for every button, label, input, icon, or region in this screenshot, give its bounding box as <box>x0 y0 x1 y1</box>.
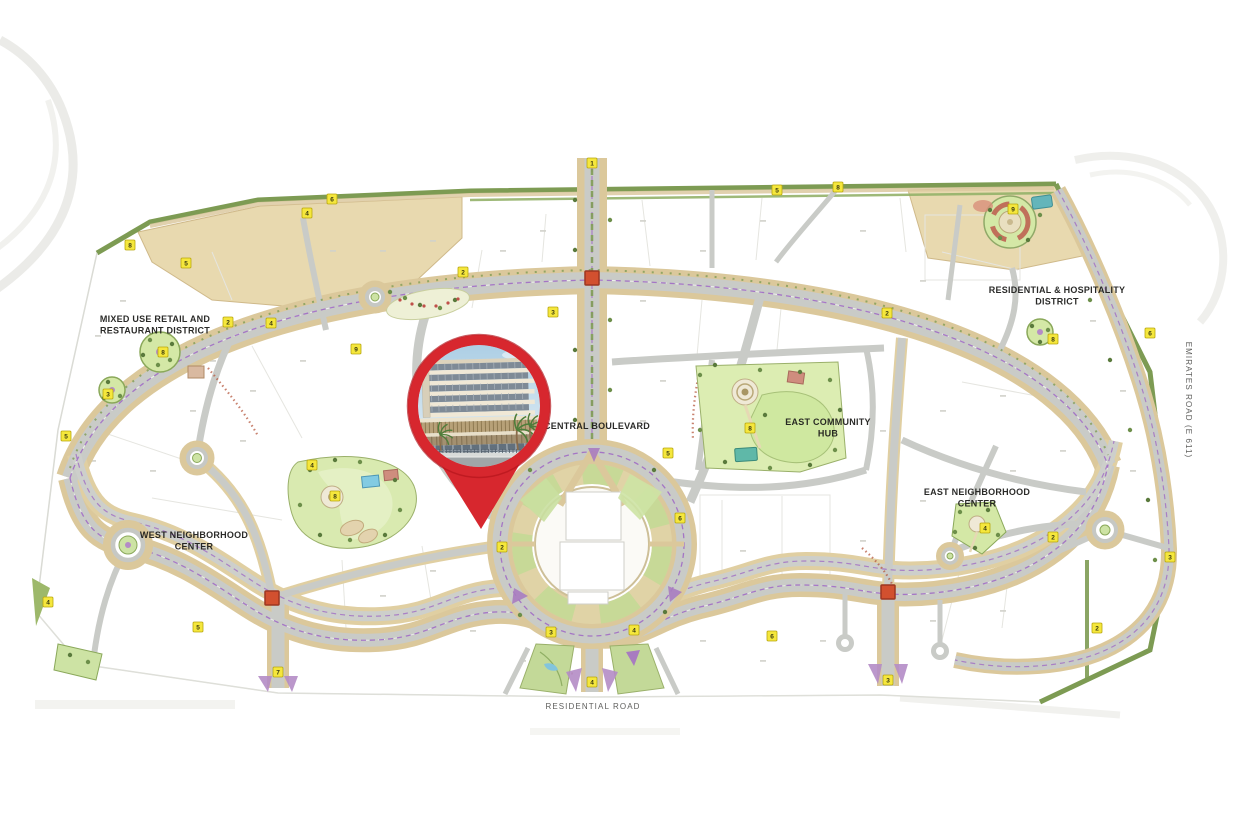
map-marker-number: 2 <box>461 270 465 277</box>
map-marker-number: 5 <box>184 261 188 268</box>
map-marker-number: 6 <box>678 516 682 523</box>
signal-junction <box>265 591 279 605</box>
map-marker-number: 3 <box>106 392 110 399</box>
map-marker: 2 <box>1048 532 1058 542</box>
residential-road-label: RESIDENTIAL ROAD <box>545 702 640 711</box>
map-marker-number: 4 <box>983 526 987 533</box>
map-marker: 4 <box>587 677 597 687</box>
map-marker-number: 8 <box>161 350 165 357</box>
map-marker: 8 <box>330 491 340 501</box>
map-marker: 6 <box>327 194 337 204</box>
emirates-road-label: EMIRATES ROAD (E 611) <box>1184 342 1193 459</box>
map-marker: 3 <box>548 307 558 317</box>
map-marker-number: 2 <box>226 320 230 327</box>
map-marker: 3 <box>883 675 893 685</box>
map-marker: 9 <box>1008 204 1018 214</box>
master-plan-map: 8546231283545494823456829864223658743 MI… <box>0 0 1236 824</box>
map-marker: 2 <box>497 542 507 552</box>
map-marker: 5 <box>61 431 71 441</box>
roundabout <box>1089 514 1121 546</box>
map-marker-number: 3 <box>551 310 555 317</box>
map-marker: 4 <box>980 523 990 533</box>
district-label-central-boulevard: CENTRAL BOULEVARD <box>544 421 650 431</box>
map-marker: 2 <box>882 308 892 318</box>
signal-junction <box>585 271 599 285</box>
map-marker-number: 4 <box>269 321 273 328</box>
map-marker: 8 <box>745 423 755 433</box>
map-marker-number: 2 <box>1095 626 1099 633</box>
map-marker-number: 4 <box>632 628 636 635</box>
map-marker-number: 8 <box>333 494 337 501</box>
map-marker-number: 2 <box>885 311 889 318</box>
map-marker: 8 <box>1048 334 1058 344</box>
map-marker-number: 9 <box>354 347 358 354</box>
map-marker: 8 <box>833 182 843 192</box>
map-marker-number: 8 <box>748 426 752 433</box>
map-marker-number: 6 <box>330 197 334 204</box>
map-marker: 3 <box>103 389 113 399</box>
map-marker: 3 <box>546 627 556 637</box>
map-marker: 5 <box>181 258 191 268</box>
map-marker: 4 <box>629 625 639 635</box>
map-marker-number: 4 <box>46 600 50 607</box>
map-marker: 4 <box>302 208 312 218</box>
map-marker-number: 2 <box>1051 535 1055 542</box>
map-marker-number: 3 <box>549 630 553 637</box>
map-marker-number: 6 <box>770 634 774 641</box>
map-marker: 2 <box>458 267 468 277</box>
building-illustration <box>415 357 543 454</box>
map-marker: 4 <box>266 318 276 328</box>
signal-junction <box>881 585 895 599</box>
map-marker-number: 4 <box>590 680 594 687</box>
map-marker: 8 <box>125 240 135 250</box>
map-marker: 9 <box>351 344 361 354</box>
map-marker: 1 <box>587 158 597 168</box>
map-marker: 6 <box>1145 328 1155 338</box>
map-marker: 2 <box>223 317 233 327</box>
central-plaza-ring <box>500 448 684 636</box>
map-marker: 7 <box>273 667 283 677</box>
map-marker: 5 <box>193 622 203 632</box>
district-label-mixed-use-retail: MIXED USE RETAIL ANDRESTAURANT DISTRICT <box>100 314 211 336</box>
map-marker-number: 5 <box>196 625 200 632</box>
map-marker-number: 5 <box>775 188 779 195</box>
map-marker-number: 6 <box>1148 331 1152 338</box>
roundabout <box>362 284 388 310</box>
map-marker-number: 5 <box>64 434 68 441</box>
map-marker: 2 <box>1092 623 1102 633</box>
map-marker-number: 8 <box>836 185 840 192</box>
map-marker: 4 <box>43 597 53 607</box>
map-marker: 4 <box>307 460 317 470</box>
map-marker-number: 7 <box>276 670 280 677</box>
map-marker-number: 9 <box>1011 207 1015 214</box>
map-marker-number: 1 <box>590 161 594 168</box>
map-marker-number: 8 <box>1051 337 1055 344</box>
roundabout <box>939 545 961 567</box>
map-marker-number: 4 <box>310 463 314 470</box>
map-marker: 6 <box>767 631 777 641</box>
map-marker: 3 <box>1165 552 1175 562</box>
map-marker-number: 2 <box>500 545 504 552</box>
map-marker-number: 5 <box>666 451 670 458</box>
map-marker: 5 <box>772 185 782 195</box>
map-marker: 8 <box>158 347 168 357</box>
map-marker-number: 3 <box>1168 555 1172 562</box>
map-marker: 6 <box>675 513 685 523</box>
masterplan-screenshot: 8546231283545494823456829864223658743 MI… <box>0 0 1236 824</box>
map-marker-number: 8 <box>128 243 132 250</box>
map-marker: 5 <box>663 448 673 458</box>
map-marker-number: 3 <box>886 678 890 685</box>
map-marker-number: 4 <box>305 211 309 218</box>
roundabout <box>183 444 211 472</box>
